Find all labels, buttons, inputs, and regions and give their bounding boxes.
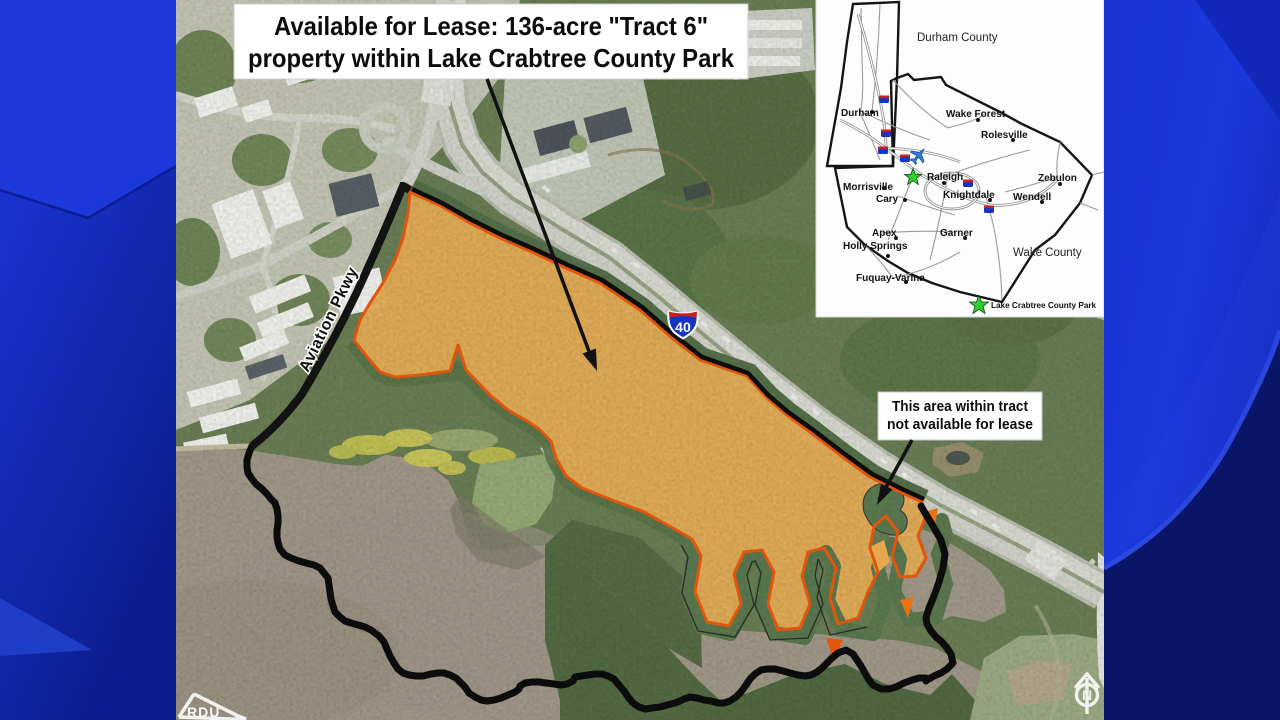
svg-text:not available for lease: not available for lease [887, 416, 1033, 433]
svg-text:Apex: Apex [872, 228, 897, 239]
svg-text:Fuquay-Varina: Fuquay-Varina [856, 273, 925, 284]
svg-text:Wake County: Wake County [1013, 247, 1082, 259]
svg-text:Zebulon: Zebulon [1038, 173, 1077, 184]
svg-text:Morrisville: Morrisville [843, 182, 893, 193]
svg-text:N: N [1082, 687, 1092, 703]
svg-text:40: 40 [675, 319, 691, 335]
svg-text:RDU: RDU [187, 704, 220, 720]
svg-text:Knightdale: Knightdale [943, 190, 995, 201]
svg-text:Durham County: Durham County [917, 32, 998, 44]
svg-text:Wendell: Wendell [1013, 192, 1051, 203]
svg-text:Garner: Garner [940, 228, 973, 239]
svg-text:Raleigh: Raleigh [927, 172, 963, 183]
svg-text:Lake Crabtree County Park: Lake Crabtree County Park [991, 301, 1097, 310]
svg-text:This area within tract: This area within tract [892, 398, 1028, 415]
svg-text:Wake Forest: Wake Forest [946, 109, 1006, 120]
svg-text:Holly Springs: Holly Springs [843, 241, 908, 252]
svg-text:Cary: Cary [876, 194, 899, 205]
svg-text:Rolesville: Rolesville [981, 130, 1028, 141]
svg-text:Durham: Durham [841, 108, 879, 119]
svg-text:Available for Lease: 136-acre: Available for Lease: 136-acre "Tract 6" [274, 11, 708, 41]
svg-text:property within Lake Crabtree: property within Lake Crabtree County Par… [248, 43, 734, 73]
